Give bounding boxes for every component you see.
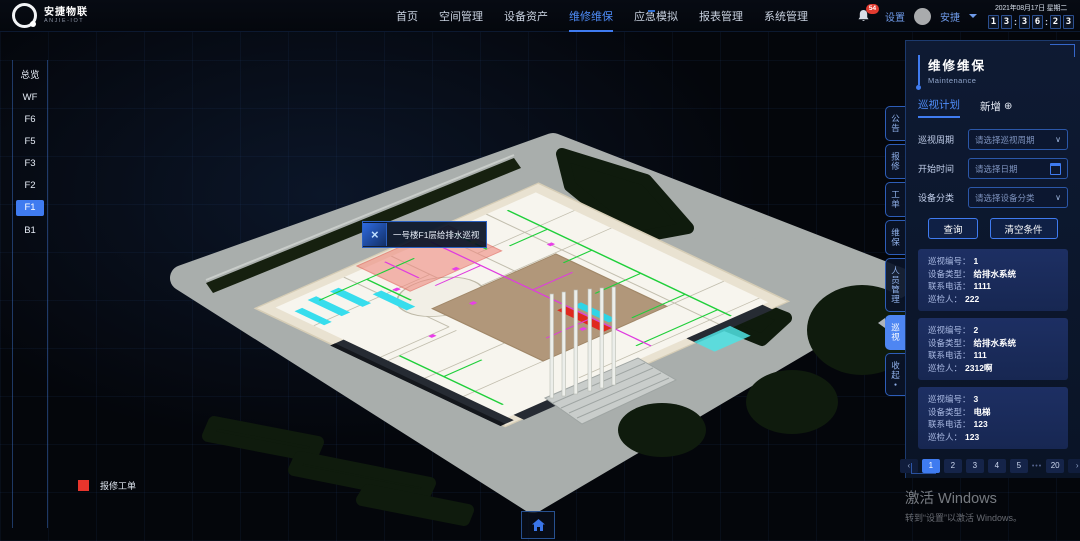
chevron-down-icon: ∨ [1055,193,1061,202]
floor-item-b1[interactable]: B1 [17,223,43,238]
model-marker-tooltip[interactable]: × 一号楼F1层给排水巡视 [362,221,487,248]
home-icon [532,519,545,531]
nav-space-management[interactable]: 空间管理 [439,0,483,32]
tab-inspection[interactable]: 巡视 [885,315,905,350]
nav-emergency-simulation[interactable]: 应急模拟 [634,0,678,32]
maintenance-panel: 维修维保 Maintenance 巡视计划 新增 ⊕ 巡视周期 请选择巡视周期 … [905,40,1080,478]
clear-conditions-button[interactable]: 清空条件 [990,218,1058,239]
nav-home[interactable]: 首页 [396,0,418,32]
pagination-next[interactable]: › [1068,459,1080,473]
inspection-card[interactable]: 巡视编号：1 设备类型：给排水系统 联系电话：1111 巡检人：222 [918,249,1068,311]
floor-item-f6[interactable]: F6 [17,112,43,127]
pagination-page-4[interactable]: 4 [988,459,1006,473]
field-value: 123 [974,418,988,431]
query-button[interactable]: 查询 [928,218,977,239]
inspection-card-list: 巡视编号：1 设备类型：给排水系统 联系电话：1111 巡检人：222 巡视编号… [918,249,1068,449]
nav-maintenance[interactable]: 维修维保 [569,0,613,32]
field-value: 2 [974,324,979,337]
field-label: 设备类型： [928,337,971,350]
field-value: 1111 [974,280,992,293]
field-value: 111 [974,349,987,362]
tab-work-orders[interactable]: 工单 [885,182,905,217]
pagination: ‹ 1 2 3 4 5 ••• 20 › [918,459,1068,473]
notification-count-badge: 54 [866,4,879,14]
field-value: 2312啊 [965,362,992,375]
field-value: 电梯 [974,406,991,419]
tab-inspection-plan[interactable]: 巡视计划 [918,97,960,118]
app-logo: 安捷物联 ANJIE-IOT [12,3,88,28]
clock-digit: 2 [1050,15,1061,29]
watermark-line1: 激活 Windows [905,487,1022,508]
datetime-display: 2021年08月17日 星期二 1 3 : 3 6 : 2 3 [988,3,1074,29]
field-value: 给排水系统 [974,337,1017,350]
pagination-page-1[interactable]: 1 [922,459,940,473]
start-date-placeholder: 请选择日期 [975,163,1018,175]
dot-icon: ● [893,382,899,388]
collapse-label: 收起 [890,361,902,380]
field-label: 巡检人： [928,293,962,306]
field-label: 设备类型： [928,406,971,419]
field-label: 巡视编号： [928,324,971,337]
legend-label: 报修工单 [100,479,136,492]
clock-digit: 3 [1019,15,1030,29]
legend-color-swatch [78,480,89,491]
inspection-marker-icon: × [363,223,387,246]
floor-selector: 总览 WF F6 F5 F3 F2 F1 B1 [12,60,48,528]
pagination-page-2[interactable]: 2 [944,459,962,473]
header-accent-tick [648,10,655,12]
clock-digit: 6 [1032,15,1043,29]
cycle-placeholder: 请选择巡视周期 [975,134,1035,146]
panel-subtitle: Maintenance [928,76,1068,85]
inspection-card[interactable]: 巡视编号：2 设备类型：给排水系统 联系电话：111 巡检人：2312啊 [918,318,1068,380]
pagination-page-3[interactable]: 3 [966,459,984,473]
logo-icon [12,3,37,28]
floor-item-f2[interactable]: F2 [17,178,43,193]
field-label: 巡视编号： [928,255,971,268]
floor-item-f5[interactable]: F5 [17,134,43,149]
clock-colon: : [1014,17,1017,27]
notifications-button[interactable]: 54 [857,9,870,23]
logo-title: 安捷物联 [44,7,88,18]
field-label: 设备类型： [928,268,971,281]
date-text: 2021年08月17日 星期二 [995,3,1067,13]
marker-label: 一号楼F1层给排水巡视 [393,229,479,241]
field-label: 联系电话： [928,349,971,362]
logo-subtitle: ANJIE-IOT [44,18,88,24]
reset-view-home-button[interactable] [521,511,555,539]
calendar-icon [1050,163,1061,175]
tab-collapse[interactable]: 收起 ● [885,353,905,396]
clock-colon: : [1045,17,1048,27]
field-value: 给排水系统 [974,268,1017,281]
clock-digit: 3 [1063,15,1074,29]
field-label: 巡检人： [928,362,962,375]
floor-item-wf[interactable]: WF [17,90,43,105]
plus-icon: ⊕ [1004,101,1012,112]
tab-announcements[interactable]: 公告 [885,106,905,141]
field-value: 123 [965,431,979,444]
field-value: 222 [965,293,979,306]
windows-activation-watermark: 激活 Windows 转到“设置”以激活 Windows。 [905,487,1022,524]
side-tab-rail: 公告 报修 工单 维保 人员管理 巡视 收起 ● [885,106,906,396]
floor-item-f1[interactable]: F1 [16,200,44,216]
tab-maintenance[interactable]: 维保 [885,220,905,255]
field-label: 联系电话： [928,418,971,431]
nav-device-assets[interactable]: 设备资产 [504,0,548,32]
clock-digit: 1 [988,15,999,29]
settings-button[interactable]: 设置 [885,9,905,24]
floor-item-overview[interactable]: 总览 [17,68,43,83]
floor-item-f3[interactable]: F3 [17,156,43,171]
clock: 1 3 : 3 6 : 2 3 [988,15,1074,29]
field-label: 联系电话： [928,280,971,293]
pagination-prev[interactable]: ‹ [900,459,918,473]
user-avatar[interactable] [914,8,931,25]
tab-add-new[interactable]: 新增 ⊕ [980,99,1012,118]
cycle-field-label: 巡视周期 [918,133,968,146]
nav-system-management[interactable]: 系统管理 [764,0,808,32]
field-label: 巡视编号： [928,393,971,406]
watermark-line2: 转到“设置”以激活 Windows。 [905,511,1022,524]
category-field-label: 设备分类 [918,191,968,204]
category-select[interactable]: 请选择设备分类 ∨ [968,187,1068,208]
pagination-ellipsis: ••• [1032,463,1042,470]
add-new-label: 新增 [980,99,1001,114]
start-date-picker[interactable]: 请选择日期 [968,158,1068,179]
panel-tabs: 巡视计划 新增 ⊕ [918,97,1068,118]
category-placeholder: 请选择设备分类 [975,192,1035,204]
panel-title: 维修维保 [928,55,1068,74]
tab-personnel-management[interactable]: 人员管理 [885,258,905,312]
clock-digit: 3 [1001,15,1012,29]
map-legend: 报修工单 [78,479,136,492]
panel-collapse-arrow-icon[interactable] [878,318,885,328]
field-value: 3 [974,393,979,406]
cycle-select[interactable]: 请选择巡视周期 ∨ [968,129,1068,150]
field-value: 1 [974,255,979,268]
pagination-page-20[interactable]: 20 [1046,459,1064,473]
chevron-down-icon[interactable] [969,14,977,18]
tab-repair-report[interactable]: 报修 [885,144,905,179]
pagination-page-5[interactable]: 5 [1010,459,1028,473]
top-bar: 安捷物联 ANJIE-IOT 首页 空间管理 设备资产 维修维保 应急模拟 报表… [0,0,1080,32]
field-label: 巡检人： [928,431,962,444]
main-nav: 首页 空间管理 设备资产 维修维保 应急模拟 报表管理 系统管理 [396,0,808,32]
start-time-field-label: 开始时间 [918,162,968,175]
chevron-down-icon: ∨ [1055,135,1061,144]
user-menu[interactable]: 安捷 [940,9,960,24]
nav-report-management[interactable]: 报表管理 [699,0,743,32]
inspection-card[interactable]: 巡视编号：3 设备类型：电梯 联系电话：123 巡检人：123 [918,387,1068,449]
